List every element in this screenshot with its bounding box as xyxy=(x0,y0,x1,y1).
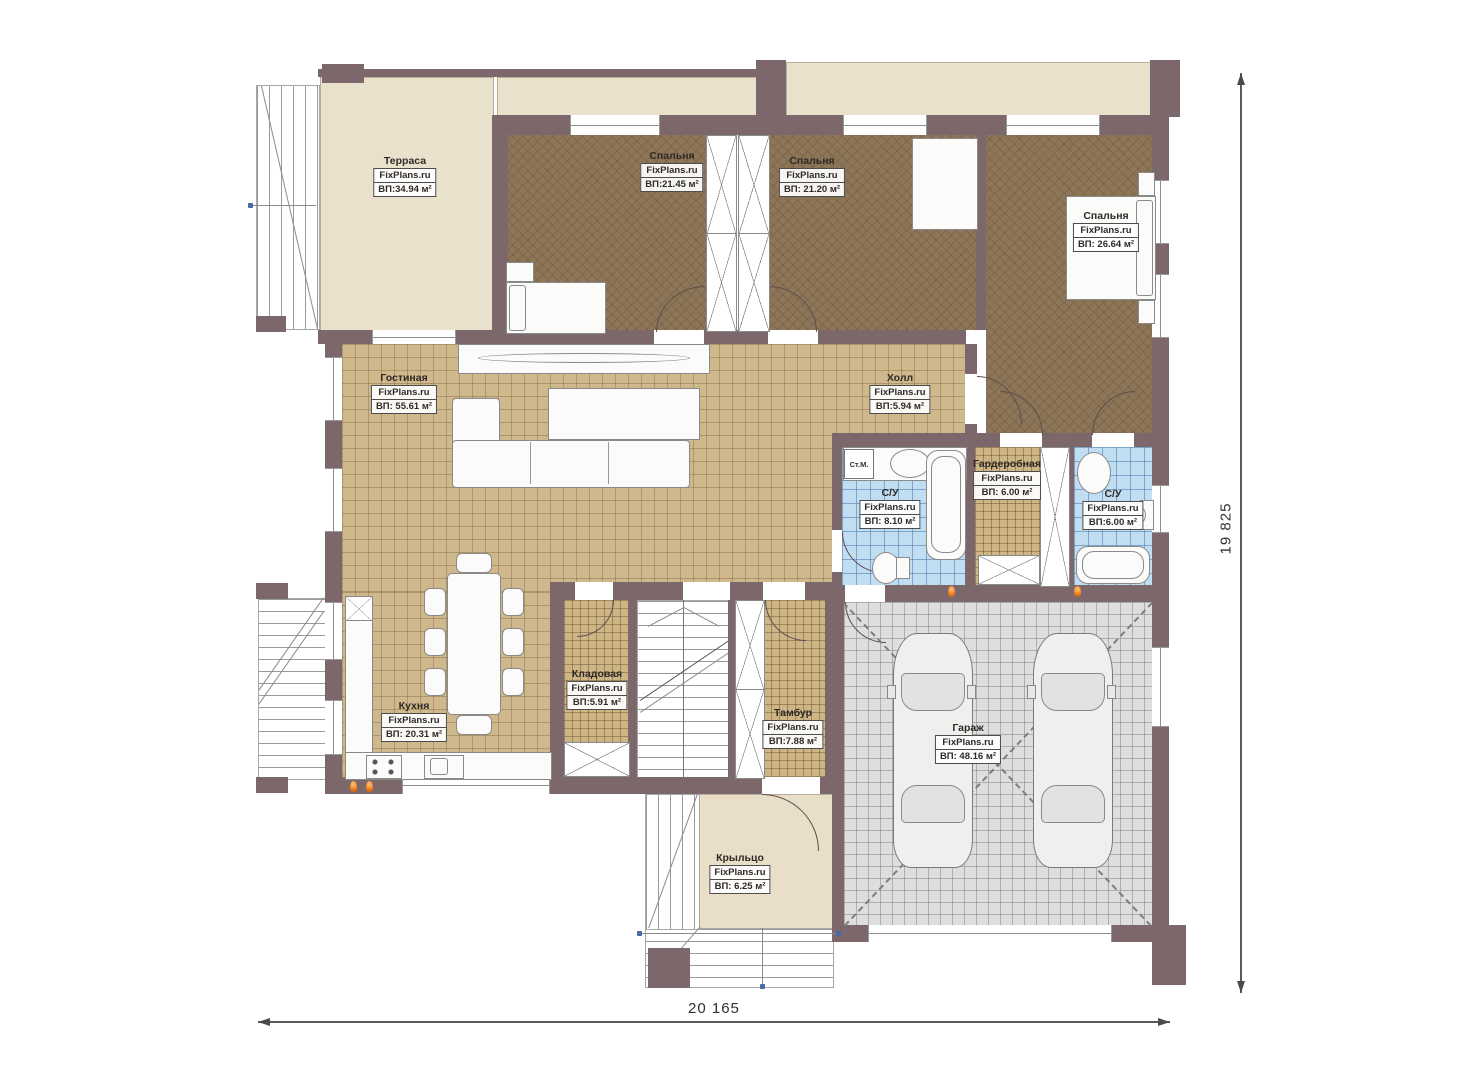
window xyxy=(325,357,342,421)
room-label-bedroom-2: Спальня FixPlans.ru ВП: 21.20 м² xyxy=(779,155,845,197)
nightstand xyxy=(1138,300,1155,324)
room-label-hall: Холл FixPlans.ru ВП:5.94 м² xyxy=(869,372,930,414)
room-brand: FixPlans.ru xyxy=(709,865,770,880)
window xyxy=(325,602,342,660)
dimension-arrow xyxy=(1237,73,1245,85)
ref-line xyxy=(640,933,840,934)
built-in-closet-bedroom-2 xyxy=(912,138,978,230)
ref-dot xyxy=(836,931,841,936)
dimension-height-text: 19 825 xyxy=(1217,503,1234,555)
room-area: ВП:34.94 м² xyxy=(373,183,436,197)
bathtub-inner xyxy=(931,456,961,553)
car-mirror xyxy=(1027,685,1036,699)
door-opening xyxy=(965,374,977,424)
ref-dot xyxy=(248,203,253,208)
room-brand: FixPlans.ru xyxy=(373,168,436,183)
room-brand: FixPlans.ru xyxy=(762,720,823,735)
room-brand: FixPlans.ru xyxy=(859,500,920,515)
wall-porch-corner xyxy=(648,948,690,988)
wall xyxy=(825,592,839,777)
wall-stair-block xyxy=(256,583,288,599)
closet-x xyxy=(706,233,737,332)
room-brand: FixPlans.ru xyxy=(640,163,703,178)
room-brand: FixPlans.ru xyxy=(381,713,447,728)
room-name: Тамбур xyxy=(762,707,823,719)
flame-marker xyxy=(948,586,955,597)
nightstand xyxy=(506,262,534,282)
flame-marker xyxy=(1074,586,1081,597)
room-label-bathroom-1: С/У FixPlans.ru ВП: 8.10 м² xyxy=(859,487,920,529)
tv-screen xyxy=(478,353,690,363)
room-brand: FixPlans.ru xyxy=(935,735,1001,750)
dining-table xyxy=(447,573,501,715)
sink-basin xyxy=(890,449,930,478)
washing-machine-label: Ст.М. xyxy=(850,460,869,469)
room-area: ВП: 55.61 м² xyxy=(371,400,437,414)
kitchen-counter-left xyxy=(345,620,373,756)
door-opening xyxy=(832,530,842,572)
car-rear-window xyxy=(901,785,965,823)
toilet-tank xyxy=(896,557,910,579)
room-name: Спальня xyxy=(640,150,703,162)
window xyxy=(1006,115,1100,135)
window xyxy=(570,115,660,135)
flame-marker xyxy=(366,781,373,792)
door-opening xyxy=(768,330,818,344)
roof-band-left xyxy=(497,77,758,117)
boiler-box xyxy=(345,596,373,622)
wall-pilaster xyxy=(756,60,786,117)
dimension-arrow xyxy=(1158,1018,1170,1026)
closet-x xyxy=(738,233,770,332)
room-name: С/У xyxy=(1082,488,1143,500)
cabinet xyxy=(548,388,700,440)
room-brand: FixPlans.ru xyxy=(973,471,1041,486)
room-name: Холл xyxy=(869,372,930,384)
room-area: ВП:21.45 м² xyxy=(640,178,703,192)
room-area: ВП: 20.31 м² xyxy=(381,728,447,742)
car-mirror xyxy=(967,685,976,699)
car xyxy=(1033,633,1113,868)
room-brand: FixPlans.ru xyxy=(869,385,930,400)
staircase-center-line xyxy=(683,600,684,777)
flame-marker xyxy=(350,781,357,792)
room-name: Спальня xyxy=(779,155,845,167)
ref-dot xyxy=(760,984,765,989)
room-area: ВП: 48.16 м² xyxy=(935,750,1001,764)
sofa-cushion-divider xyxy=(608,442,609,484)
room-area: ВП: 6.00 м² xyxy=(973,486,1041,500)
room-name: Терраса xyxy=(373,155,436,167)
chair xyxy=(456,553,492,573)
room-name: Крыльцо xyxy=(709,852,770,864)
nightstand xyxy=(1138,172,1155,196)
wall-stair-block xyxy=(256,316,286,332)
ref-line xyxy=(250,205,316,206)
room-area: ВП: 6.25 м² xyxy=(709,880,770,894)
door-opening xyxy=(1092,433,1134,447)
floor-plan: Ст.М. Терраса FixPlans.ru ВП:34.94 м² Сп… xyxy=(0,0,1474,1080)
wall-stair-block xyxy=(256,777,288,793)
wall-pilaster xyxy=(1150,60,1180,117)
room-brand: FixPlans.ru xyxy=(566,681,627,696)
ref-dot xyxy=(637,931,642,936)
room-area: ВП:7.88 м² xyxy=(762,735,823,749)
wall xyxy=(318,69,758,77)
window xyxy=(325,700,342,755)
bed-pillow xyxy=(509,285,526,331)
room-name: Кладовая xyxy=(566,668,627,680)
car-windshield xyxy=(1041,673,1105,711)
kitchen-sink-bowl xyxy=(430,758,448,775)
room-area: ВП:5.91 м² xyxy=(566,696,627,710)
chair xyxy=(456,715,492,735)
chair xyxy=(502,628,524,656)
room-label-bathroom-2: С/У FixPlans.ru ВП:6.00 м² xyxy=(1082,488,1143,530)
room-name: Гараж xyxy=(935,722,1001,734)
car-mirror xyxy=(887,685,896,699)
door-opening xyxy=(845,585,885,602)
room-label-living: Гостиная FixPlans.ru ВП: 55.61 м² xyxy=(371,372,437,414)
bathtub-inner xyxy=(1082,551,1144,579)
closet-x xyxy=(738,135,770,235)
wall xyxy=(728,600,735,777)
room-label-porch: Крыльцо FixPlans.ru ВП: 6.25 м² xyxy=(709,852,770,894)
room-name: С/У xyxy=(859,487,920,499)
closet-x xyxy=(735,689,765,779)
roof-band-right xyxy=(786,62,1154,117)
room-label-bedroom-1: Спальня FixPlans.ru ВП:21.45 м² xyxy=(640,150,703,192)
stairs-opening xyxy=(683,582,730,600)
wall xyxy=(550,592,564,777)
dimension-arrow xyxy=(1237,981,1245,993)
room-name: Гардеробная xyxy=(973,458,1041,470)
window xyxy=(325,468,342,532)
dimension-line-right xyxy=(1240,73,1242,993)
chair xyxy=(502,588,524,616)
door-opening xyxy=(762,777,820,794)
door-opening xyxy=(763,582,805,600)
door-opening xyxy=(575,582,613,600)
room-brand: FixPlans.ru xyxy=(1073,223,1139,238)
room-area: ВП: 26.64 м² xyxy=(1073,238,1139,252)
dimension-arrow xyxy=(258,1018,270,1026)
room-name: Спальня xyxy=(1073,210,1139,222)
room-area: ВП: 8.10 м² xyxy=(859,515,920,529)
car-body xyxy=(1033,633,1113,868)
terrace-floor xyxy=(320,77,494,332)
room-label-bedroom-3: Спальня FixPlans.ru ВП: 26.64 м² xyxy=(1073,210,1139,252)
garage-door xyxy=(868,925,1112,942)
dimension-width-text: 20 165 xyxy=(688,1000,740,1017)
sofa-cushion-divider xyxy=(530,442,531,484)
room-label-terrace: Терраса FixPlans.ru ВП:34.94 м² xyxy=(373,155,436,197)
closet-x xyxy=(1040,447,1070,587)
room-label-storage: Кладовая FixPlans.ru ВП:5.91 м² xyxy=(566,668,627,710)
car-rear-window xyxy=(1041,785,1105,823)
window xyxy=(1152,485,1169,533)
stove xyxy=(366,755,402,779)
chair xyxy=(424,628,446,656)
closet-x xyxy=(564,742,630,777)
chair xyxy=(424,668,446,696)
closet-x xyxy=(706,135,737,235)
room-label-garage: Гараж FixPlans.ru ВП: 48.16 м² xyxy=(935,722,1001,764)
room-label-kitchen: Кухня FixPlans.ru ВП: 20.31 м² xyxy=(381,700,447,742)
wall xyxy=(1152,925,1186,985)
room-area: ВП: 21.20 м² xyxy=(779,183,845,197)
terrace-outdoor-stairs xyxy=(256,85,320,330)
chair xyxy=(424,588,446,616)
room-area: ВП:5.94 м² xyxy=(869,400,930,414)
sofa-body xyxy=(452,440,690,488)
car-mirror xyxy=(1107,685,1116,699)
room-name: Кухня xyxy=(381,700,447,712)
room-label-vestibule: Тамбур FixPlans.ru ВП:7.88 м² xyxy=(762,707,823,749)
closet-x xyxy=(735,600,765,691)
closet-x xyxy=(978,555,1040,585)
car-windshield xyxy=(901,673,965,711)
room-name: Гостиная xyxy=(371,372,437,384)
door-opening xyxy=(654,330,704,344)
ref-line xyxy=(762,928,763,988)
room-brand: FixPlans.ru xyxy=(371,385,437,400)
room-label-wardrobe: Гардеробная FixPlans.ru ВП: 6.00 м² xyxy=(973,458,1041,500)
door-opening xyxy=(1000,433,1042,447)
chair xyxy=(502,668,524,696)
wall xyxy=(322,64,364,83)
window xyxy=(843,115,927,135)
washing-machine: Ст.М. xyxy=(844,449,874,479)
dimension-line-bottom xyxy=(258,1021,1170,1023)
room-area: ВП:6.00 м² xyxy=(1082,516,1143,530)
window xyxy=(1152,647,1169,727)
window-terrace-door xyxy=(372,330,456,344)
room-brand: FixPlans.ru xyxy=(779,168,845,183)
room-brand: FixPlans.ru xyxy=(1082,501,1143,516)
